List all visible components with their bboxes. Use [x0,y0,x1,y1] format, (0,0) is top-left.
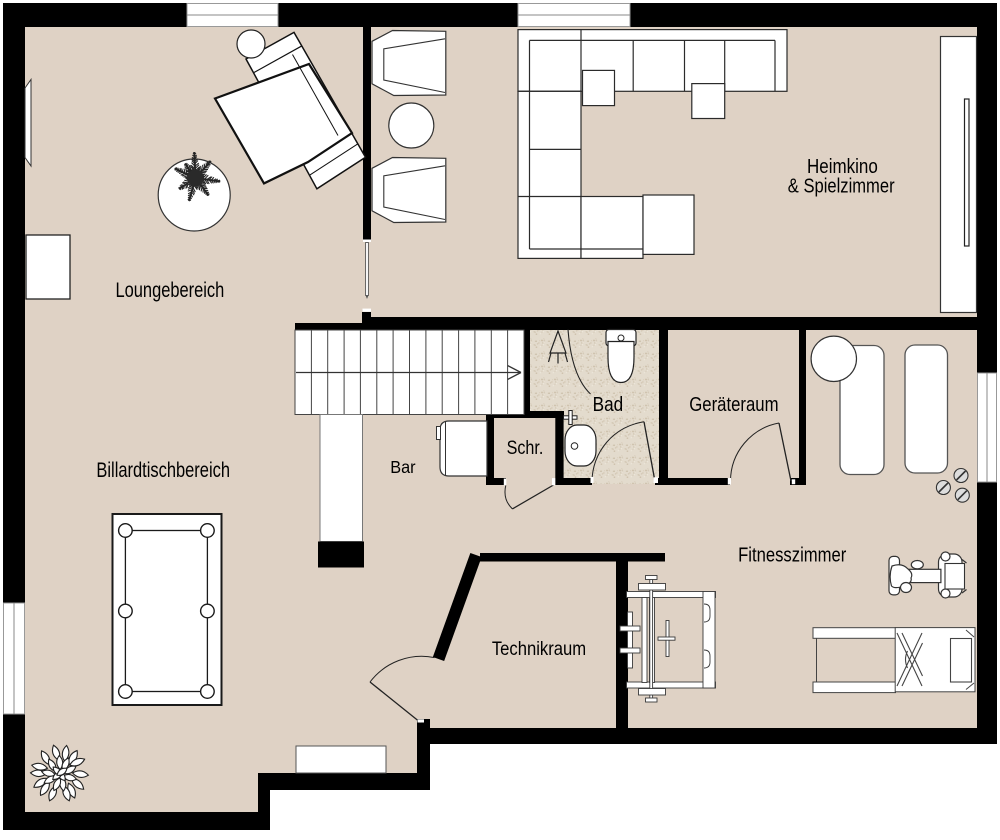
svg-text:Billardtischbereich: Billardtischbereich [96,459,230,482]
svg-text:Bad: Bad [593,393,624,416]
svg-text:Loungebereich: Loungebereich [115,279,224,302]
svg-text:Geräteraum: Geräteraum [689,394,778,416]
svg-text:& Spielzimmer: & Spielzimmer [788,175,895,197]
svg-text:Fitnesszimmer: Fitnesszimmer [738,544,846,566]
svg-text:Schr.: Schr. [507,438,544,459]
svg-text:Technikraum: Technikraum [492,638,586,660]
svg-text:Bar: Bar [390,457,415,477]
